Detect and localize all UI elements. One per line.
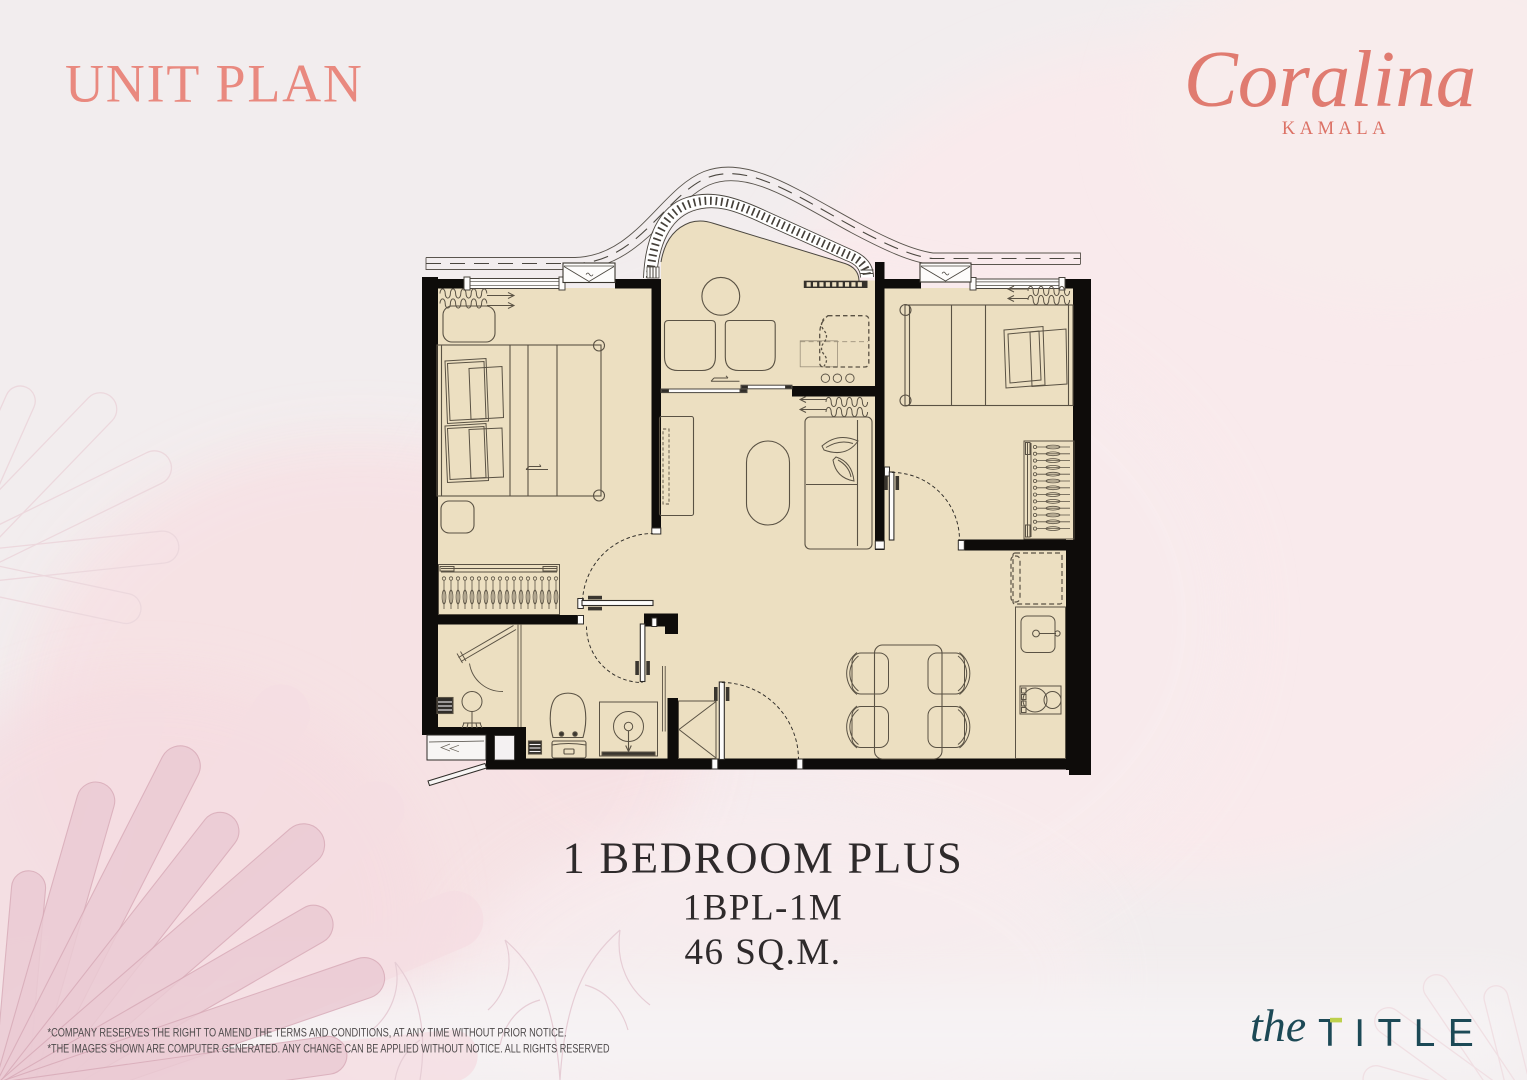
svg-text:UNIT PLAN: UNIT PLAN: [65, 54, 364, 114]
svg-text:46 SQ.M.: 46 SQ.M.: [685, 932, 842, 973]
svg-text:KAMALA: KAMALA: [1282, 119, 1390, 139]
svg-text:Coralina: Coralina: [1184, 34, 1477, 124]
svg-text:*THE IMAGES SHOWN ARE COMPUTER: *THE IMAGES SHOWN ARE COMPUTER GENERATED…: [48, 1042, 610, 1056]
svg-text:the: the: [1250, 1000, 1306, 1051]
svg-text:1BPL-1M: 1BPL-1M: [683, 888, 844, 929]
svg-text:1 BEDROOM PLUS: 1 BEDROOM PLUS: [562, 833, 963, 883]
svg-text:TITLE: TITLE: [1318, 1012, 1486, 1055]
svg-text:*COMPANY RESERVES THE RIGHT TO: *COMPANY RESERVES THE RIGHT TO AMEND THE…: [48, 1026, 567, 1040]
